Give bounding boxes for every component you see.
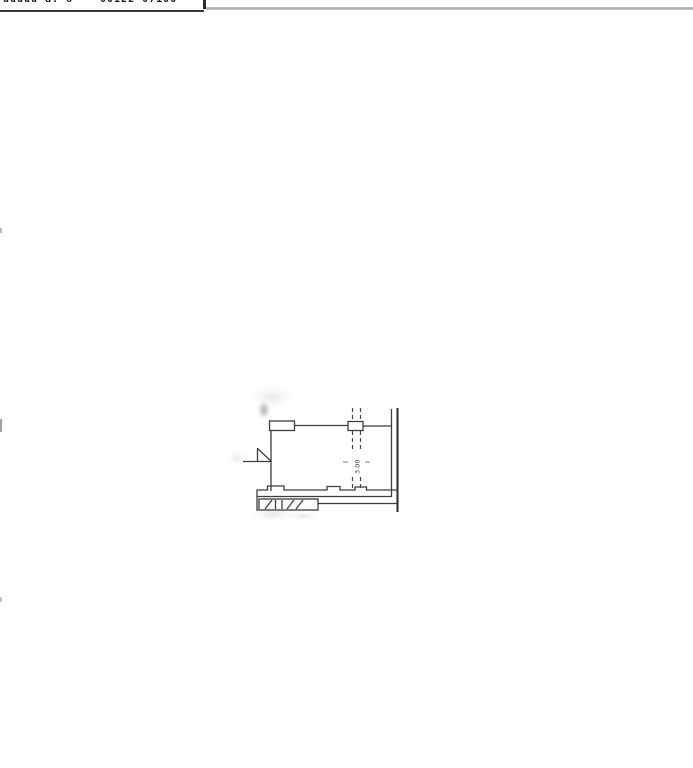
door-swing-line bbox=[258, 449, 272, 462]
dashed-partition: 3.00 bbox=[343, 408, 370, 491]
scan-smudges bbox=[226, 382, 321, 523]
smudge-haze-top bbox=[245, 382, 299, 412]
smudge-top-left-corner bbox=[256, 399, 272, 421]
smudge-left-of-door bbox=[226, 449, 248, 467]
partition-dimension-label: 3.00 bbox=[354, 460, 362, 474]
pier-rect bbox=[348, 422, 363, 431]
floor-plan-drawing: 3.00 bbox=[0, 0, 693, 768]
smudge-below-wall-2 bbox=[285, 510, 321, 522]
window-jamb-rect bbox=[270, 421, 295, 431]
